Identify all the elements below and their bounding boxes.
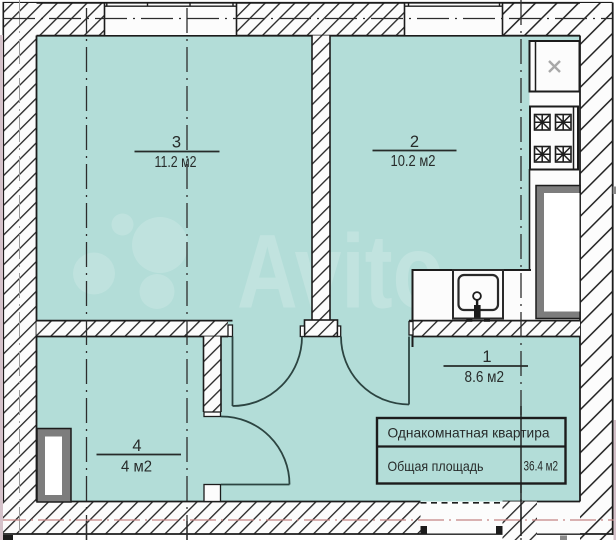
svg-text:3: 3 bbox=[172, 134, 181, 152]
svg-text:Общая площадь: Общая площадь bbox=[388, 458, 484, 474]
svg-text:4: 4 bbox=[132, 437, 141, 455]
svg-text:8.6 м2: 8.6 м2 bbox=[465, 369, 505, 386]
svg-text:10.2 м2: 10.2 м2 bbox=[391, 153, 436, 170]
svg-text:4 м2: 4 м2 bbox=[121, 459, 152, 476]
svg-text:2: 2 bbox=[410, 133, 419, 151]
svg-text:36.4 м2: 36.4 м2 bbox=[524, 459, 559, 474]
svg-text:11.2 м2: 11.2 м2 bbox=[155, 154, 197, 171]
svg-text:1: 1 bbox=[482, 348, 491, 366]
svg-text:Однакомнатная квартира: Однакомнатная квартира bbox=[388, 425, 550, 441]
